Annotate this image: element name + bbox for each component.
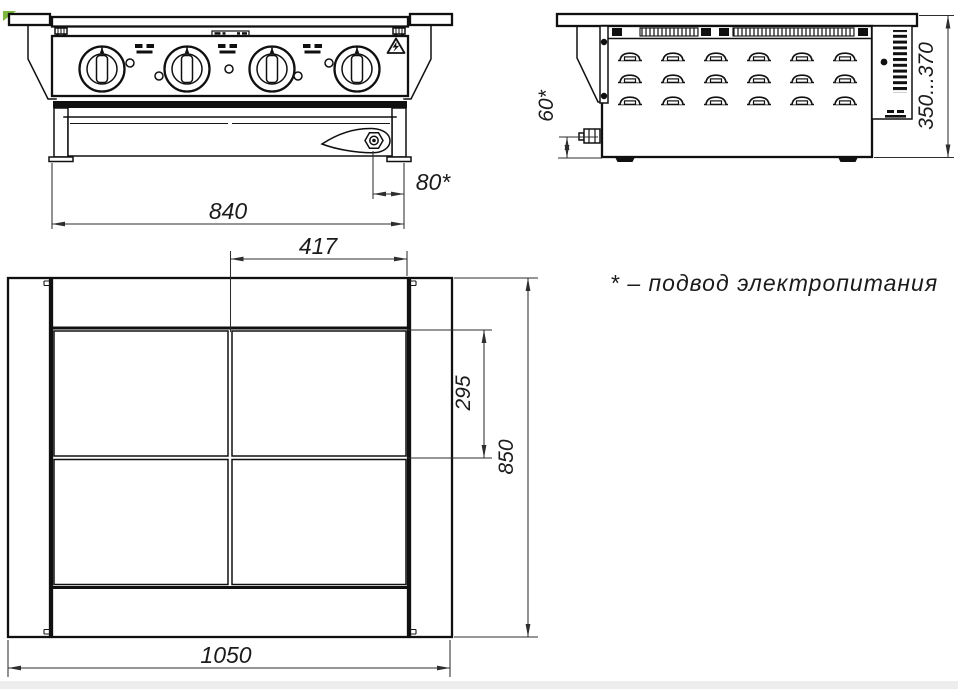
leg-left bbox=[54, 108, 68, 157]
dim-label-gland-offset: 80* bbox=[416, 169, 452, 195]
screw-dot bbox=[601, 93, 607, 99]
note-power-supply: * – подвод электропитания bbox=[610, 270, 938, 296]
front-view: 840 80* bbox=[9, 14, 452, 229]
bracket-ladder bbox=[893, 30, 907, 93]
dim-label-zone-depth: 295 bbox=[452, 375, 475, 411]
mount-bracket-side bbox=[577, 26, 603, 102]
indicator-light bbox=[325, 59, 333, 67]
indicator-light bbox=[155, 72, 163, 80]
screw-dot bbox=[601, 39, 607, 45]
foot-right bbox=[387, 157, 411, 162]
knob-4 bbox=[335, 47, 380, 92]
indicator-light bbox=[294, 72, 302, 80]
side-view: 60* 350...370 bbox=[535, 14, 954, 162]
control-panel-edge bbox=[872, 26, 912, 119]
front-edge-strip bbox=[600, 26, 608, 103]
dim-label-height-range: 350...370 bbox=[915, 42, 938, 130]
sheet-bottom-strip bbox=[0, 681, 958, 689]
cable-gland-side bbox=[579, 129, 600, 143]
dim-label-overall-depth: 850 bbox=[495, 439, 518, 474]
countertop-side bbox=[557, 14, 917, 26]
dim-60: 60* bbox=[535, 89, 602, 158]
panel-shadow-band bbox=[53, 101, 407, 108]
dim-label-overall-width: 1050 bbox=[200, 642, 251, 668]
side-foot bbox=[615, 157, 635, 162]
foot-left bbox=[49, 157, 73, 162]
countertop-right bbox=[410, 14, 452, 25]
knob-2 bbox=[165, 47, 210, 92]
knob-1 bbox=[80, 47, 125, 92]
dim-1050: 1050 bbox=[8, 640, 450, 677]
dim-80: 80* bbox=[373, 151, 451, 199]
drawing-canvas: 840 80* bbox=[0, 0, 958, 689]
screw-dot bbox=[881, 59, 888, 66]
plan-view: 417 295 850 1050 bbox=[8, 233, 538, 677]
knob-3 bbox=[250, 47, 295, 92]
indicator-light bbox=[126, 59, 134, 67]
dim-label-gland-height: 60* bbox=[535, 89, 558, 121]
dim-label-zone-width: 417 bbox=[299, 233, 339, 259]
dim-840: 840 bbox=[52, 163, 404, 229]
indicator-light bbox=[225, 65, 233, 73]
leg-right bbox=[392, 108, 406, 157]
countertop-left bbox=[9, 14, 50, 25]
side-trim-left bbox=[8, 278, 50, 637]
technical-drawing-sheet: 840 80* bbox=[0, 0, 958, 689]
top-flange bbox=[52, 17, 408, 27]
side-body bbox=[602, 26, 872, 157]
terminal-strip bbox=[612, 28, 868, 36]
side-foot bbox=[838, 157, 858, 162]
dim-label-front-width: 840 bbox=[209, 198, 248, 224]
